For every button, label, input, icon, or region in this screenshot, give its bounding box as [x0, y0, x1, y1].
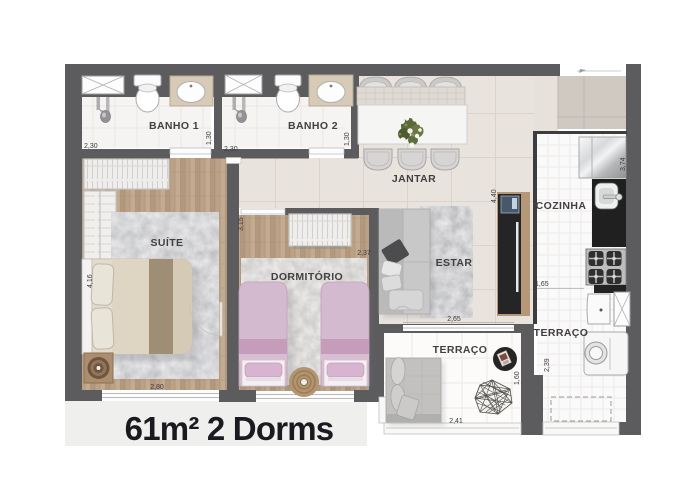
svg-text:1,30: 1,30	[206, 131, 213, 145]
svg-text:4,40: 4,40	[491, 189, 498, 203]
svg-text:3,74: 3,74	[620, 157, 627, 171]
svg-text:SUÍTE: SUÍTE	[151, 236, 184, 249]
svg-text:2,37: 2,37	[357, 250, 371, 257]
svg-text:1,60: 1,60	[514, 371, 521, 385]
svg-text:DORMITÓRIO: DORMITÓRIO	[271, 270, 343, 283]
svg-text:2,30: 2,30	[84, 143, 98, 150]
svg-text:2,80: 2,80	[150, 384, 164, 391]
svg-text:1,65: 1,65	[535, 281, 549, 288]
svg-text:COZINHA: COZINHA	[536, 200, 587, 212]
svg-text:1,30: 1,30	[344, 132, 351, 146]
svg-text:3,15: 3,15	[238, 217, 245, 231]
svg-text:2,65: 2,65	[447, 316, 461, 323]
svg-text:2,30: 2,30	[224, 146, 238, 153]
svg-text:BANHO 2: BANHO 2	[288, 120, 338, 132]
svg-text:TERRAÇO: TERRAÇO	[433, 344, 488, 356]
svg-text:61m² 2 Dorms: 61m² 2 Dorms	[125, 410, 334, 447]
svg-text:BANHO 1: BANHO 1	[149, 120, 199, 132]
svg-text:2,39: 2,39	[544, 358, 551, 372]
svg-text:JANTAR: JANTAR	[392, 173, 436, 185]
svg-text:TERRAÇO: TERRAÇO	[534, 327, 589, 339]
svg-text:ESTAR: ESTAR	[436, 257, 473, 269]
svg-text:4,16: 4,16	[87, 274, 94, 288]
svg-text:2,41: 2,41	[449, 418, 463, 425]
